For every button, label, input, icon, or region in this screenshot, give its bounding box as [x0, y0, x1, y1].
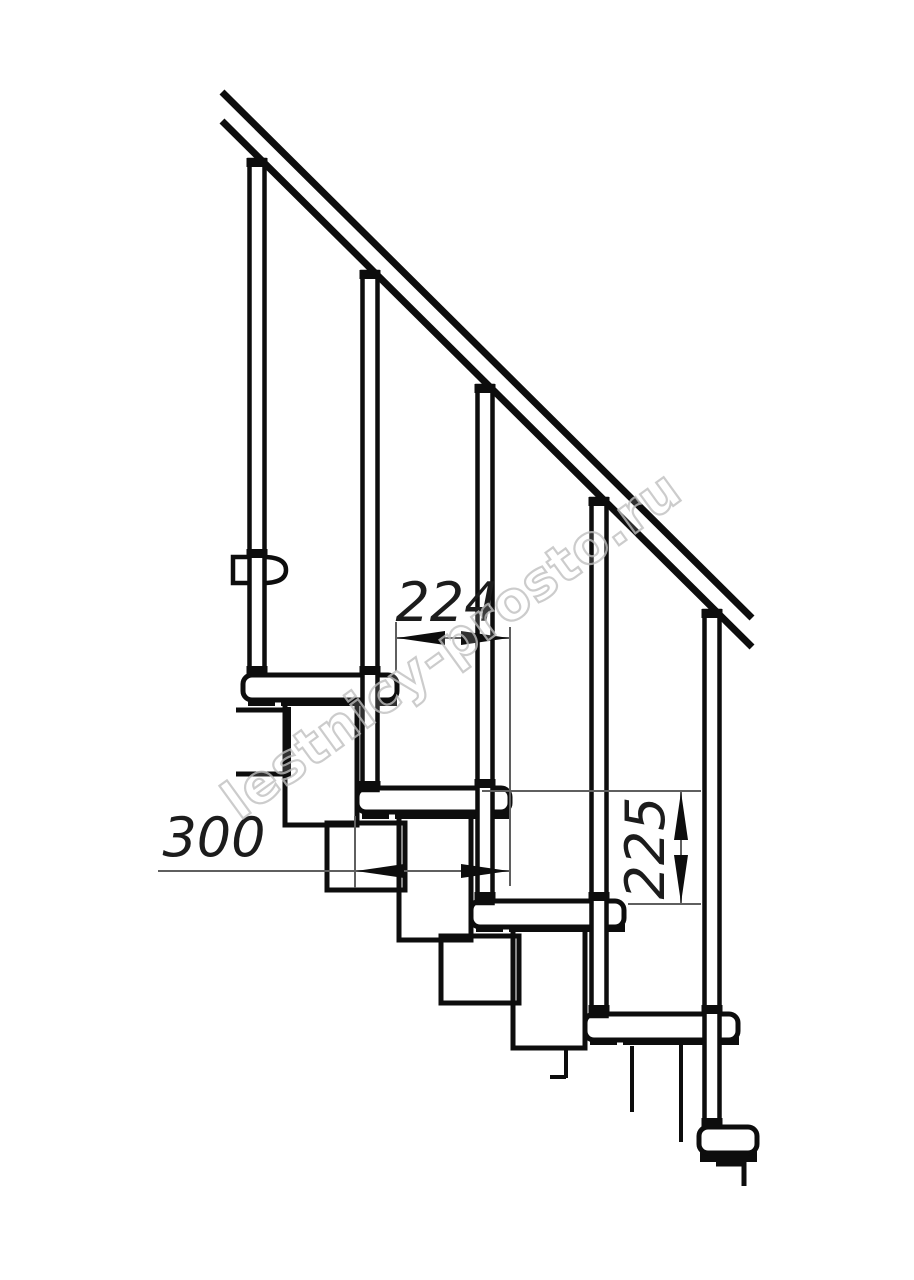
baluster-2-bottom-collar — [360, 781, 381, 790]
baluster-5-bottom-collar — [702, 1118, 723, 1127]
dim-224-label: 224 — [395, 571, 498, 634]
module-tail-line-1 — [550, 1048, 566, 1078]
baluster-4-bottom-collar — [589, 1005, 610, 1014]
tread-5 — [699, 1127, 757, 1153]
baluster-4-mid-collar — [589, 892, 610, 901]
module-column-1 — [285, 700, 357, 825]
staircase-drawing: 224 300 225 lestnicy-prosto.ru — [0, 0, 914, 1280]
tread-5-break-line — [716, 1164, 744, 1186]
baluster-2 — [363, 272, 378, 790]
module-box-1 — [327, 823, 405, 890]
module-column-3 — [513, 928, 585, 1048]
baluster-5-mid-collar — [702, 1005, 723, 1014]
module-column-2 — [399, 813, 471, 940]
baluster-3-bottom-collar — [475, 892, 496, 901]
baluster-4 — [592, 499, 607, 1016]
module-box-2 — [441, 936, 519, 1003]
floor-anchor — [236, 707, 288, 777]
baluster-1-bottom-collar — [247, 666, 268, 675]
baluster-3 — [478, 386, 493, 903]
dim-300-label: 300 — [162, 806, 265, 869]
baluster-3-mid-collar — [475, 779, 496, 788]
baluster-2-mid-collar — [360, 666, 381, 675]
baluster-1 — [250, 160, 265, 675]
baluster-5 — [705, 611, 720, 1127]
baluster-1-mid-collar — [247, 549, 268, 558]
dim-225-label: 225 — [614, 796, 677, 899]
drawing-canvas: 224 300 225 — [0, 0, 914, 1280]
